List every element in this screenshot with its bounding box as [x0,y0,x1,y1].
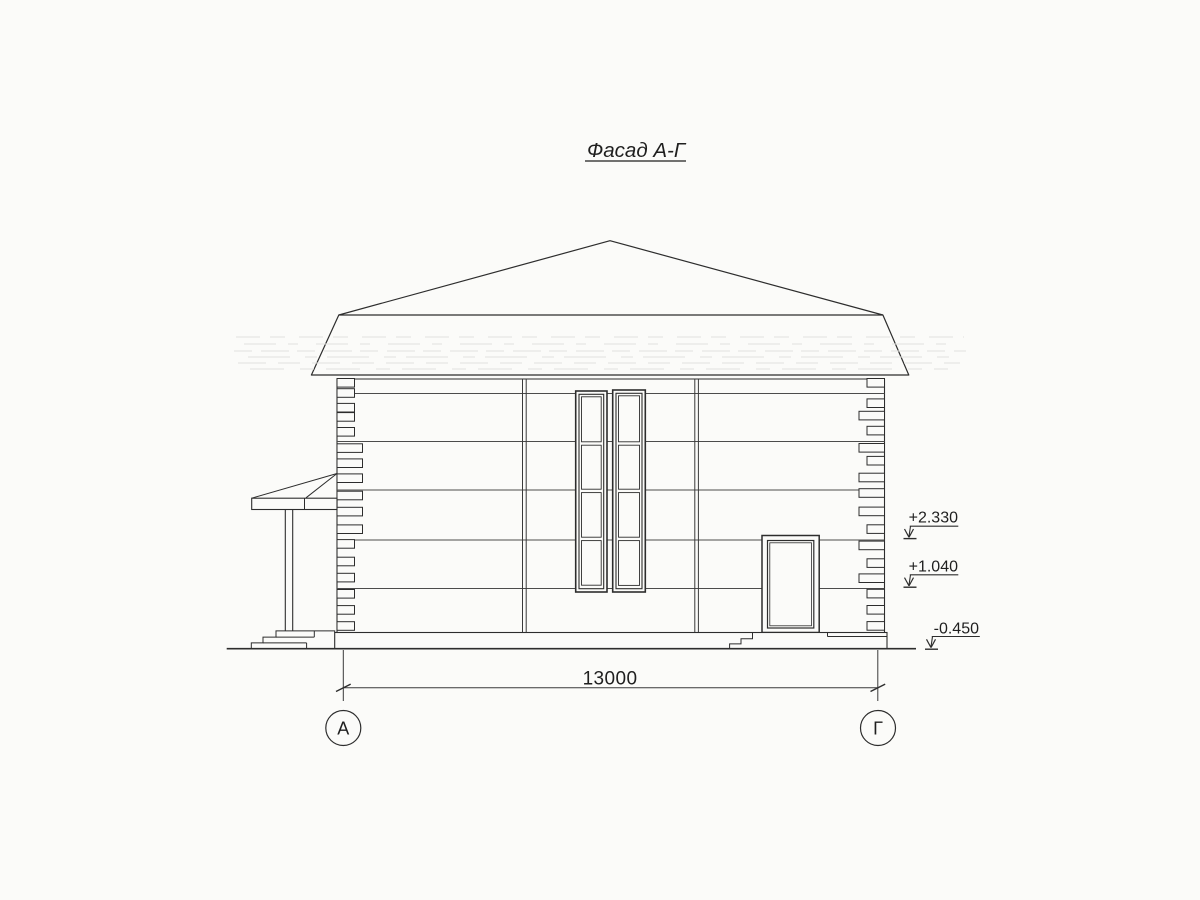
svg-text:13000: 13000 [583,669,638,690]
svg-text:А: А [337,719,349,739]
svg-text:Г: Г [873,719,883,739]
svg-text:+1.040: +1.040 [909,559,958,576]
svg-text:Фасад А-Г: Фасад А-Г [587,139,687,162]
svg-text:+2.330: +2.330 [909,510,958,527]
svg-text:-0.450: -0.450 [934,621,979,638]
